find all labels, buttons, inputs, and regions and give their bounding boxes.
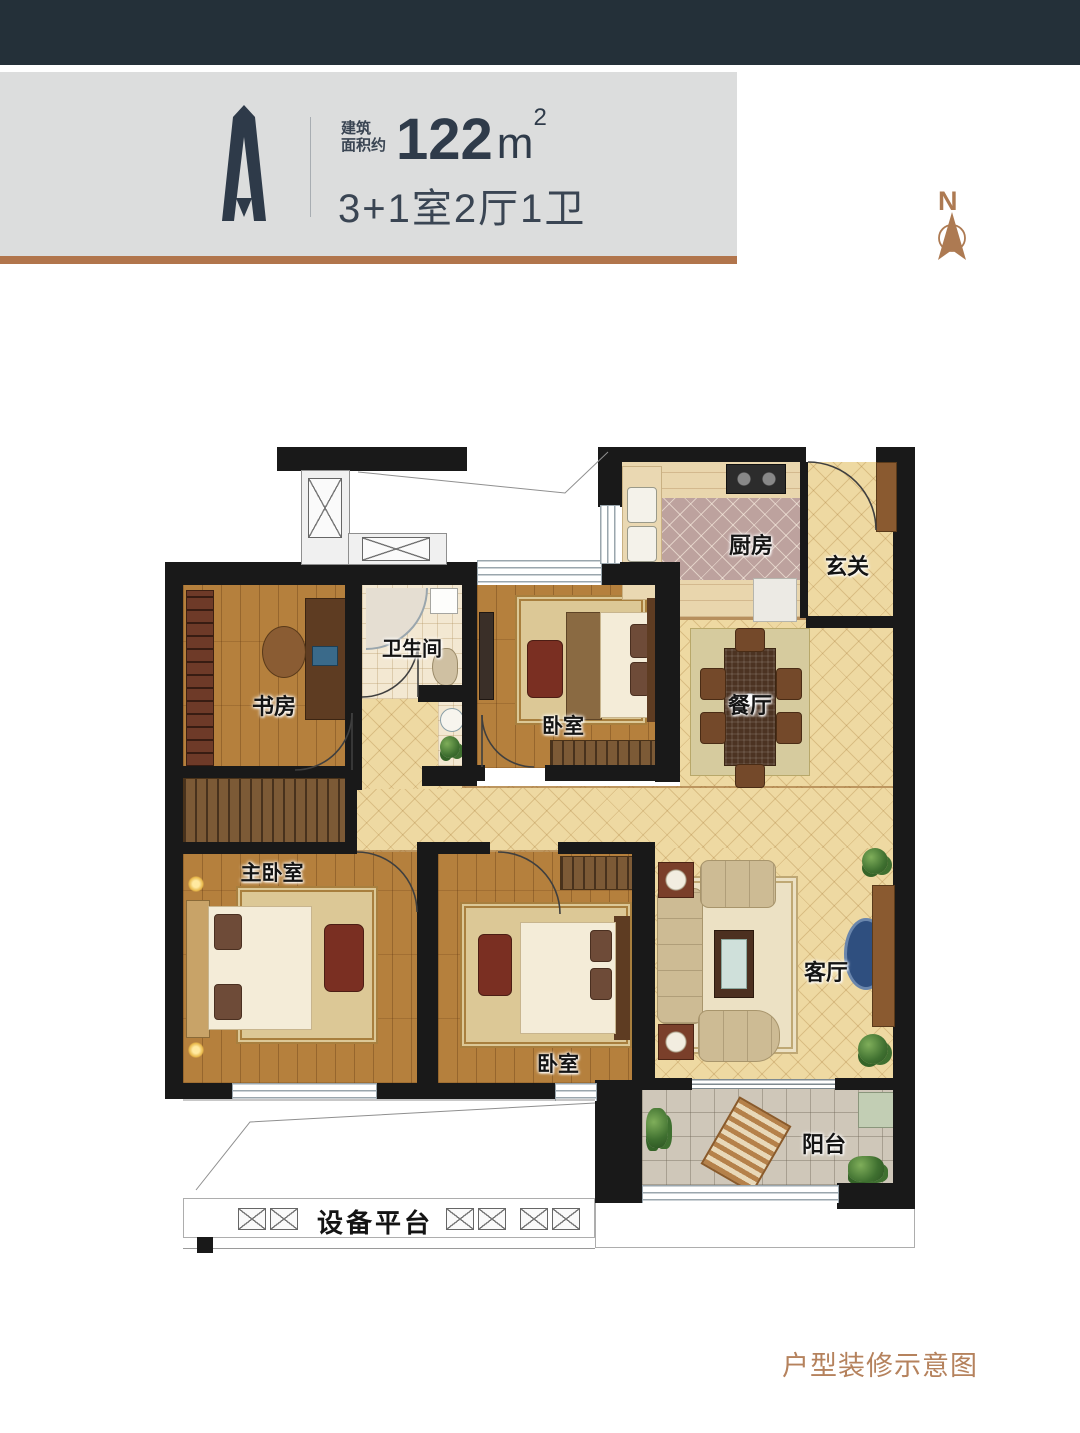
header-divider [310, 117, 311, 217]
lamp [188, 1042, 204, 1058]
bedroom-south-armchair [478, 934, 512, 996]
vanity-plant [440, 736, 460, 758]
top-banner [0, 0, 1080, 65]
area-value-row: 122 m 2 [396, 104, 547, 170]
plant [646, 1108, 668, 1148]
dining-chair [735, 764, 765, 788]
balcony-cabinet [858, 1092, 894, 1128]
header-accent-bar [0, 256, 737, 264]
room-label-bedroom-south: 卧室 [537, 1048, 579, 1078]
equipment-box-icon [238, 1208, 266, 1230]
bedroom-north-headboard [647, 598, 655, 722]
bedroom-north-blanket [566, 612, 602, 720]
wall [632, 842, 655, 1083]
window-band [600, 505, 620, 564]
pillow [590, 968, 612, 1000]
balcony-sill [595, 1203, 915, 1248]
room-label-kitchen: 厨房 [729, 528, 773, 560]
plant [858, 1034, 888, 1064]
equipment-box-icon [552, 1208, 580, 1230]
window-band [642, 1185, 839, 1203]
plant [848, 1156, 884, 1182]
dining-chair [700, 712, 726, 744]
equipment-box-icon [478, 1208, 506, 1230]
area-unit: m [497, 118, 534, 170]
bedroom-south-headboard [614, 916, 630, 1040]
wall [165, 562, 477, 585]
compass-icon [926, 210, 978, 266]
bookshelf [186, 590, 214, 768]
window-band [555, 1083, 597, 1101]
wall [598, 447, 806, 462]
wall [835, 1078, 893, 1090]
side-table [658, 1024, 694, 1060]
flue-box-icon [362, 537, 430, 561]
kitchen-sink [627, 526, 657, 562]
wall [418, 685, 462, 702]
area-prefix-line2: 面积约 [341, 137, 386, 154]
bedroom-south-closet [560, 856, 634, 890]
pillow [590, 930, 612, 962]
wall [165, 842, 357, 854]
entry-cabinet [876, 462, 897, 532]
area-prefix-line1: 建筑 [341, 120, 386, 137]
area-prefix: 建筑 面积约 [341, 120, 386, 154]
wall [422, 766, 477, 786]
wall [438, 842, 490, 854]
dining-chair [700, 668, 726, 700]
dining-chair [776, 712, 802, 744]
room-label-entry: 玄关 [825, 549, 869, 581]
master-headboard [186, 900, 210, 1038]
study-chair [262, 626, 306, 678]
room-label-bedroom-north: 卧室 [542, 710, 584, 740]
outline [196, 1103, 595, 1190]
coffee-table [714, 930, 754, 998]
dining-chair [776, 668, 802, 700]
equipment-box-icon [270, 1208, 298, 1230]
window-band [232, 1083, 377, 1099]
floorplan-page: 建筑 面积约 122 m 2 3+1室2厅1卫 N [0, 0, 1080, 1433]
sofa-main [657, 888, 703, 1024]
area-exponent: 2 [533, 106, 546, 130]
sofa-chaise [698, 1010, 780, 1062]
wall [462, 562, 477, 768]
flue-box-icon [308, 478, 342, 538]
bedroom-north-armchair [527, 640, 563, 698]
wall [345, 562, 362, 790]
equipment-box-icon [520, 1208, 548, 1230]
footer-caption: 户型装修示意图 [782, 1344, 978, 1383]
room-label-living: 客厅 [804, 955, 848, 987]
room-label-study: 书房 [252, 689, 296, 721]
equipment-platform-label: 设备平台 [310, 1203, 440, 1240]
pillow [214, 914, 242, 950]
lamp [188, 876, 204, 892]
wall [800, 462, 808, 618]
wall [893, 447, 915, 1207]
area-number: 122 [396, 110, 493, 170]
study-laptop [312, 646, 338, 666]
room-label-balcony: 阳台 [802, 1127, 846, 1159]
wall [477, 765, 485, 781]
master-closet [183, 778, 347, 846]
stove [726, 464, 786, 494]
bedroom-north-closet [550, 740, 657, 768]
wall [655, 562, 680, 782]
layout-spec: 3+1室2厅1卫 [338, 176, 586, 234]
kitchen-sink [627, 487, 657, 523]
wall [837, 1183, 915, 1209]
plant [862, 848, 888, 874]
sliding-door [692, 1079, 835, 1089]
wall [375, 1083, 555, 1099]
vanity-basin [440, 708, 464, 732]
dining-chair [735, 628, 765, 652]
wall [598, 447, 622, 507]
tv-cabinet [872, 885, 895, 1027]
room-label-bathroom: 卫生间 [382, 633, 442, 662]
window-band [477, 560, 602, 585]
sofa-loveseat [700, 860, 776, 908]
equipment-box-icon [446, 1208, 474, 1230]
wall [642, 1078, 692, 1090]
wall [277, 447, 467, 471]
pillow [214, 984, 242, 1020]
wall [417, 842, 438, 1083]
wall [197, 1237, 213, 1253]
fridge [753, 578, 797, 622]
wall [165, 562, 183, 1098]
room-label-master: 主卧室 [241, 857, 304, 887]
bedroom-north-tv [479, 612, 494, 700]
wall [165, 766, 345, 778]
side-table [658, 862, 694, 898]
room-label-dining: 餐厅 [728, 688, 772, 720]
wall [595, 1080, 642, 1203]
master-armchair [324, 924, 364, 992]
wall [806, 616, 893, 628]
unit-a-logo [218, 103, 270, 225]
bath-sink [430, 588, 458, 614]
wall [165, 1083, 232, 1099]
